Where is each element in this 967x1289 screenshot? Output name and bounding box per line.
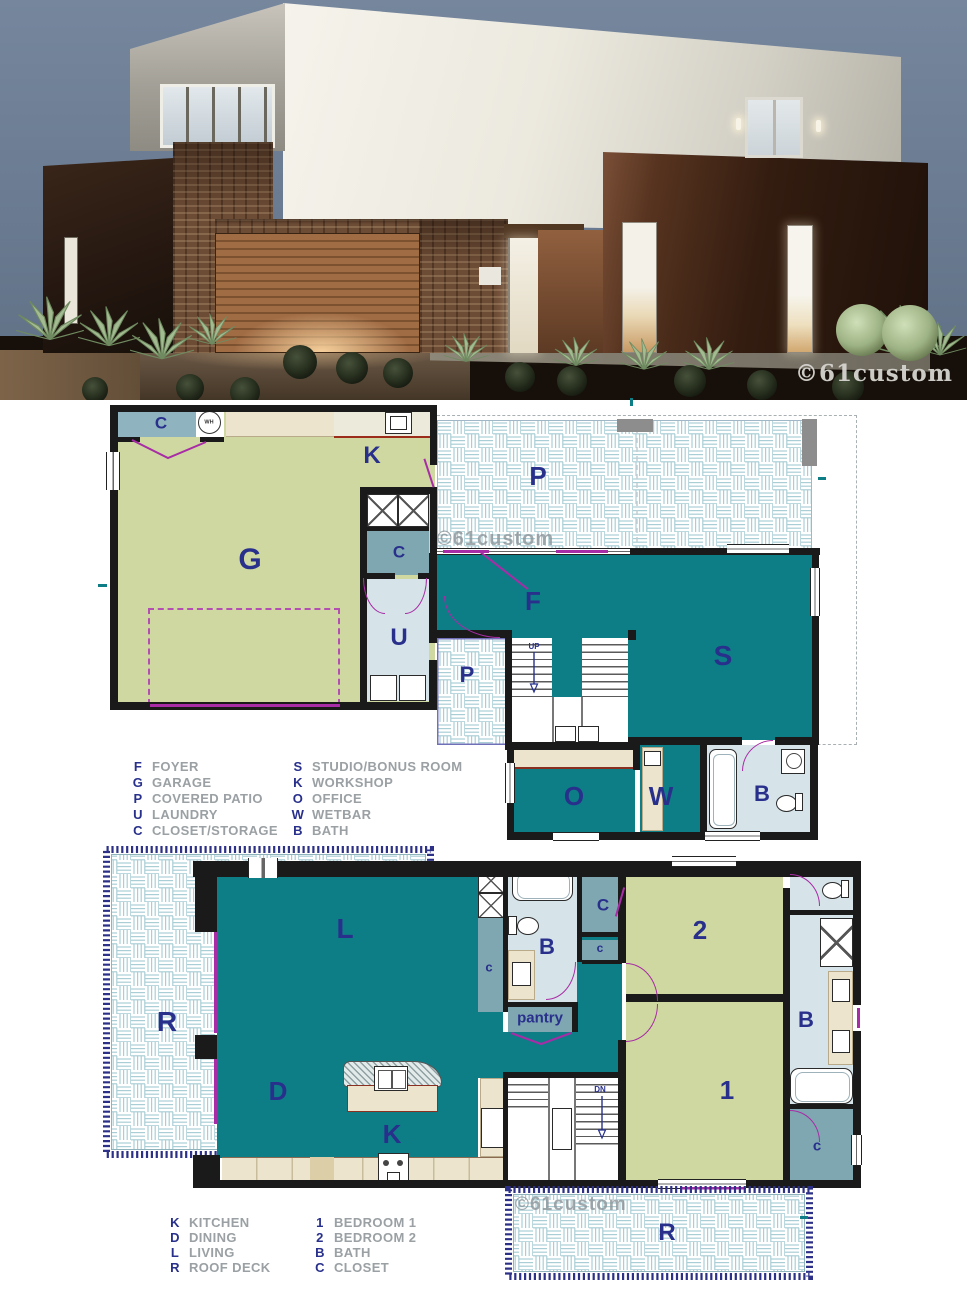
toilet-2	[517, 917, 539, 935]
room-label-entry-patio: P	[460, 664, 475, 686]
studio-window	[810, 568, 820, 616]
sliding-door-mark	[214, 1059, 218, 1124]
legend-text: COVERED PATIO	[152, 792, 263, 805]
legend2-row: 2BEDROOM 2	[313, 1231, 416, 1244]
wall	[193, 861, 858, 877]
legend2-row: DDINING	[168, 1231, 237, 1244]
stone-band	[215, 219, 420, 234]
legend-text: BATH	[334, 1246, 371, 1259]
legend1-row: GGARAGE	[131, 776, 211, 789]
legend1-row: OOFFICE	[291, 792, 362, 805]
room-label-closet-small: c	[597, 942, 604, 954]
legend1-row: WWETBAR	[291, 808, 371, 821]
room-label-bedroom1: 1	[720, 1077, 734, 1103]
legend-key: F	[131, 760, 145, 773]
wall	[633, 745, 640, 770]
stair-treads	[582, 638, 628, 697]
legend-key: L	[168, 1246, 182, 1259]
legend-text: LIVING	[189, 1246, 235, 1259]
legend-key: O	[291, 792, 305, 805]
legend1-row: BBATH	[291, 824, 349, 837]
plan1-watermark: ©61custom	[437, 528, 554, 551]
bath2-sink	[512, 962, 531, 986]
room-label-wetbar: W	[649, 783, 674, 809]
double-door-v	[128, 436, 212, 462]
wall	[195, 877, 217, 932]
legend-text: CLOSET	[334, 1261, 389, 1274]
bedroom2-window	[672, 856, 736, 867]
utility-sink-basin	[390, 416, 407, 430]
stair-rail	[574, 1078, 576, 1182]
legend2-row: BBATH	[313, 1246, 371, 1259]
sink-basin-l	[378, 1070, 392, 1089]
legend-text: FOYER	[152, 760, 199, 773]
wall	[110, 405, 437, 412]
toilet-3	[822, 882, 843, 899]
roof-support	[617, 419, 653, 432]
kitchen-counter	[222, 1157, 508, 1182]
legend-key: G	[131, 776, 145, 789]
stair-treads	[508, 1078, 548, 1112]
plan2-watermark: ©61custom	[515, 1194, 627, 1216]
legend-key: 2	[313, 1231, 327, 1244]
dim-tick	[800, 1216, 808, 1219]
wall	[790, 910, 853, 915]
wall	[195, 1035, 217, 1059]
legend-text: BEDROOM 1	[334, 1216, 416, 1229]
legend2-row: RROOF DECK	[168, 1261, 271, 1274]
wall	[700, 745, 707, 840]
bath1-window	[705, 831, 760, 841]
wardrobe-x-left	[367, 494, 398, 527]
wall	[582, 960, 622, 964]
wall	[630, 548, 820, 555]
legend-text: GARAGE	[152, 776, 211, 789]
legend-key: W	[291, 808, 305, 821]
legend-text: STUDIO/BONUS ROOM	[312, 760, 463, 773]
legend-text: CLOSET/STORAGE	[152, 824, 278, 837]
wall	[505, 632, 512, 750]
legend-key: K	[168, 1216, 182, 1229]
room-label-pantry: pantry	[517, 1011, 563, 1026]
balcony-window-band	[160, 84, 275, 148]
shower	[820, 918, 853, 967]
wall	[503, 866, 508, 1012]
legend-key: B	[291, 824, 305, 837]
legend-text: LAUNDRY	[152, 808, 218, 821]
legend-key: 1	[313, 1216, 327, 1229]
legend-key: D	[168, 1231, 182, 1244]
room-label-office: O	[564, 783, 584, 809]
studio-top-window	[727, 544, 789, 554]
wall	[572, 1002, 578, 1032]
legend1-row: CCLOSET/STORAGE	[131, 824, 278, 837]
stair-post	[578, 726, 599, 742]
dim-tick	[818, 477, 826, 480]
wall	[508, 1002, 572, 1007]
wall	[429, 553, 437, 643]
car-space-dashed	[148, 608, 340, 705]
window-sill-mark	[556, 550, 608, 553]
office-door-gap	[553, 832, 599, 841]
roof-dashed-line	[437, 415, 857, 416]
legend-text: DINING	[189, 1231, 237, 1244]
wall	[810, 737, 818, 840]
room-label-roofdeck: R	[157, 1008, 177, 1036]
legend1-row: KWORKSHOP	[291, 776, 393, 789]
stair-gap	[552, 638, 582, 697]
wall	[430, 490, 437, 553]
dryer	[399, 675, 426, 701]
room-label-closet-left: c	[485, 961, 492, 974]
wall	[582, 932, 622, 937]
legend-key: C	[313, 1261, 327, 1274]
room-label-bath3: B	[798, 1009, 814, 1031]
legend2-row: LLIVING	[168, 1246, 235, 1259]
room-label-foyer: F	[525, 588, 541, 614]
wall	[110, 405, 118, 710]
wall	[503, 1072, 622, 1078]
legend-text: OFFICE	[312, 792, 362, 805]
legend-key: K	[291, 776, 305, 789]
burner	[397, 1160, 403, 1166]
plan-sheet: ©61custom WH	[0, 0, 967, 1289]
wall	[790, 1104, 853, 1109]
legend1-row: ULAUNDRY	[131, 808, 218, 821]
bathtub-3-inner	[795, 1072, 850, 1102]
hall-strip	[478, 1012, 503, 1078]
legend-text: ROOF DECK	[189, 1261, 271, 1274]
wall	[360, 487, 437, 494]
room-label-dining: D	[269, 1078, 288, 1104]
wall	[618, 1040, 626, 1188]
garage-window	[106, 452, 120, 490]
wall	[429, 660, 437, 705]
legend-text: BATH	[312, 824, 349, 837]
room-label-closet-bottom: c	[813, 1139, 821, 1154]
water-heater-label: WH	[204, 420, 213, 426]
wall-lamp-1	[736, 118, 741, 130]
bath3-sink-2	[832, 1030, 850, 1053]
room-label-roofdeck-bottom: R	[658, 1221, 675, 1245]
legend1-row: PCOVERED PATIO	[131, 792, 263, 805]
roof-deck-door	[745, 97, 803, 158]
up-arrow	[528, 652, 540, 694]
legend-text: WORKSHOP	[312, 776, 393, 789]
wardrobe-x-right	[398, 494, 429, 527]
room-label-bath2: B	[539, 936, 555, 958]
toilet-3-tank	[841, 880, 849, 898]
wetbar-sink	[644, 751, 661, 766]
sliding-door-mark	[214, 932, 218, 1033]
dn-label: DN	[594, 1086, 606, 1094]
burner	[383, 1160, 389, 1166]
bath1-sink-bowl	[786, 753, 802, 769]
office-window	[505, 763, 515, 803]
stair-post	[555, 726, 576, 742]
room-label-kitchen: K	[383, 1121, 402, 1147]
room-label-studio: S	[714, 642, 733, 670]
legend-key: R	[168, 1261, 182, 1274]
toilet-1	[776, 795, 797, 812]
wall	[628, 630, 636, 640]
legend1-row: FFOYER	[131, 760, 199, 773]
legend-text: KITCHEN	[189, 1216, 250, 1229]
stair-post	[552, 1108, 572, 1150]
wall	[577, 866, 582, 962]
wall	[430, 405, 437, 465]
workshop-counter	[226, 410, 334, 437]
legend2-row: CCLOSET	[313, 1261, 389, 1274]
wall	[783, 866, 790, 872]
legend2-row: KKITCHEN	[168, 1216, 250, 1229]
room-label-bedroom2: 2	[693, 917, 707, 943]
dn-arrow	[596, 1096, 608, 1140]
room-label-closet-top: C	[597, 897, 609, 914]
wall	[783, 994, 790, 1188]
legend2-row: 1BEDROOM 1	[313, 1216, 416, 1229]
toilet-1-tank	[795, 793, 803, 811]
toilet-2-tank	[508, 916, 517, 935]
roof-support	[802, 419, 817, 466]
legend-key: P	[131, 792, 145, 805]
right-door-mark	[857, 1008, 860, 1028]
wall-lamp-2	[816, 120, 821, 132]
legend-text: BEDROOM 2	[334, 1231, 416, 1244]
bath3-sink-1	[832, 979, 850, 1002]
render-watermark: ©61custom	[795, 360, 953, 387]
wall	[783, 888, 790, 994]
entry-patio-deck	[437, 638, 508, 745]
roof-dashed-line	[856, 415, 857, 745]
room-label-workshop: K	[363, 444, 380, 468]
legend-key: U	[131, 808, 145, 821]
wall	[367, 527, 429, 531]
room-label-patio: P	[529, 463, 546, 489]
bathtub-1-inner	[713, 754, 735, 826]
dim-tick	[630, 398, 633, 406]
legend-text: WETBAR	[312, 808, 371, 821]
washer	[370, 675, 397, 701]
pantry-door-v	[508, 1030, 574, 1048]
room-label-bath1: B	[754, 783, 770, 805]
up-label: UP	[528, 643, 539, 651]
room-label-garage: G	[238, 545, 261, 575]
linen-x-2	[478, 893, 504, 918]
legend-key: B	[313, 1246, 327, 1259]
stair-rail	[548, 1078, 550, 1182]
room-label-laundry: U	[390, 626, 407, 650]
house-render: ©61custom	[0, 0, 967, 400]
legend-key: C	[131, 824, 145, 837]
room-label-living: L	[336, 915, 353, 943]
legend1-row: SSTUDIO/BONUS ROOM	[291, 760, 463, 773]
counter-block	[310, 1157, 334, 1182]
living-top-window	[248, 858, 278, 878]
wall	[505, 742, 638, 750]
room-label-closet-mid: C	[393, 544, 405, 561]
dim-tick	[98, 584, 107, 587]
room-label-closet: C	[155, 415, 167, 432]
legend-key: S	[291, 760, 305, 773]
sink-basin-r	[392, 1070, 406, 1089]
wall	[503, 1078, 508, 1188]
closet-bottom-window	[851, 1135, 862, 1165]
stair-rail	[552, 697, 554, 742]
wall	[628, 737, 742, 745]
garage-door-mark	[150, 704, 340, 707]
wall	[618, 866, 626, 963]
